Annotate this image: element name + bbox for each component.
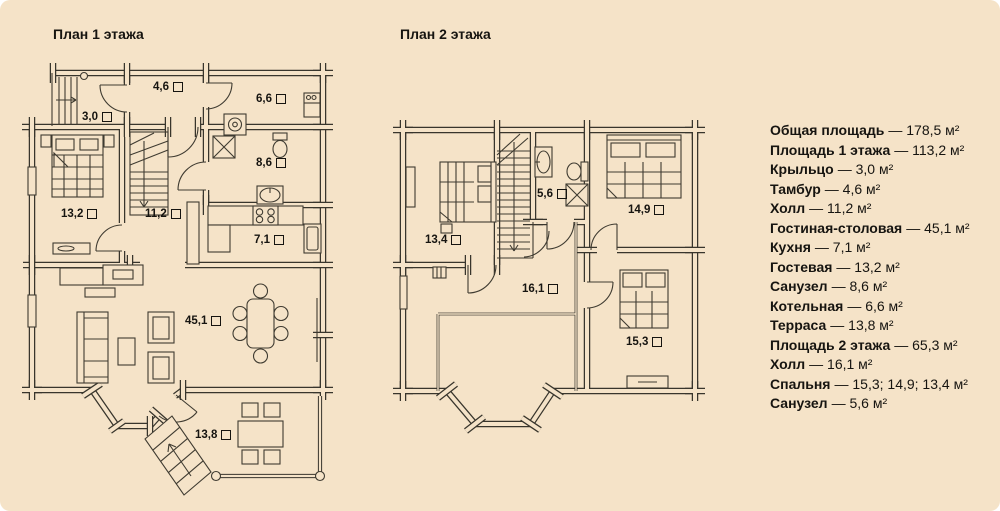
sqm-icon xyxy=(548,284,558,294)
sink-icon xyxy=(535,147,552,177)
room-area-label: 13,2 xyxy=(61,208,97,220)
room-area-label: 13,8 xyxy=(195,429,231,441)
room-area-label: 5,6 xyxy=(537,188,567,200)
legend-item: Площадь 2 этажа— 65,3 м² xyxy=(770,336,995,356)
plan2-drawing: 5,6 14,9 13,4 16,1 15,3 xyxy=(390,110,710,450)
room-area-label: 7,1 xyxy=(254,234,284,246)
plan1-svg xyxy=(20,55,360,505)
toilet-icon xyxy=(273,133,287,158)
dresser-icon xyxy=(53,243,90,254)
toilet-icon xyxy=(567,162,588,181)
boiler-icon xyxy=(304,93,320,117)
dining-table-icon xyxy=(233,284,288,363)
sqm-icon xyxy=(652,337,662,347)
sqm-icon xyxy=(654,205,664,215)
sqm-icon xyxy=(451,235,461,245)
bed-icon xyxy=(607,135,681,198)
staircase-icon xyxy=(497,134,533,258)
room-area-label: 13,4 xyxy=(425,234,461,246)
legend-item: Кухня— 7,1 м² xyxy=(770,238,995,258)
room-area-label: 16,1 xyxy=(522,283,558,295)
bed-icon xyxy=(440,162,496,233)
sofa-icon xyxy=(77,312,108,383)
room-area-label: 14,9 xyxy=(628,204,664,216)
legend-item: Котельная— 6,6 м² xyxy=(770,297,995,317)
legend-item: Крыльцо— 3,0 м² xyxy=(770,160,995,180)
staircase-icon xyxy=(130,132,168,215)
washing-machine-icon xyxy=(224,114,246,135)
legend-item: Терраса— 13,8 м² xyxy=(770,316,995,336)
room-area-label: 3,0 xyxy=(82,111,112,123)
room-area-label: 6,6 xyxy=(256,93,286,105)
legend-item: Общая площадь— 178,5 м² xyxy=(770,121,995,141)
sqm-icon xyxy=(173,82,183,92)
terrace-stairs-icon xyxy=(145,416,211,495)
door-swing-icon xyxy=(468,222,617,308)
radiator-icon xyxy=(433,267,446,278)
legend-item: Санузел— 8,6 м² xyxy=(770,277,995,297)
room-area-label: 45,1 xyxy=(185,315,221,327)
legend-item: Гостевая— 13,2 м² xyxy=(770,258,995,278)
stove-icon xyxy=(253,206,278,225)
plan1-title: План 1 этажа xyxy=(53,26,144,42)
legend: Общая площадь— 178,5 м² Площадь 1 этажа—… xyxy=(770,121,995,414)
legend-item: Холл— 11,2 м² xyxy=(770,199,995,219)
plan2-svg xyxy=(390,110,710,450)
armchair-icon xyxy=(148,312,174,383)
sqm-icon xyxy=(211,316,221,326)
sqm-icon xyxy=(276,158,286,168)
plan2-title: План 2 этажа xyxy=(400,26,491,42)
sqm-icon xyxy=(557,189,567,199)
coffee-table-icon xyxy=(118,338,135,365)
floorplan-card: План 1 этажа План 2 этажа xyxy=(0,0,1000,511)
sqm-icon xyxy=(102,112,112,122)
legend-item: Спальня— 15,3; 14,9; 13,4 м² xyxy=(770,375,995,395)
legend-item: Холл— 16,1 м² xyxy=(770,355,995,375)
dresser-icon xyxy=(627,376,668,388)
sqm-icon xyxy=(221,430,231,440)
sqm-icon xyxy=(87,209,97,219)
bed-icon xyxy=(41,135,114,197)
chimney-duct xyxy=(187,202,199,264)
legend-item: Санузел— 5,6 м² xyxy=(770,394,995,414)
legend-item: Тамбур— 4,6 м² xyxy=(770,180,995,200)
sink-icon xyxy=(257,186,283,204)
room-area-label: 8,6 xyxy=(256,157,286,169)
fridge-icon xyxy=(304,224,321,253)
room-area-label: 11,2 xyxy=(145,208,181,220)
shower-icon xyxy=(566,184,588,206)
room-area-label: 15,3 xyxy=(626,336,662,348)
legend-item: Площадь 1 этажа— 113,2 м² xyxy=(770,141,995,161)
room-area-label: 4,6 xyxy=(153,81,183,93)
sqm-icon xyxy=(274,235,284,245)
sqm-icon xyxy=(171,209,181,219)
plan1-drawing: 3,0 4,6 6,6 8,6 13,2 11,2 7,1 45,1 13,8 xyxy=(20,55,360,505)
desk-icon xyxy=(60,265,143,297)
bed-icon xyxy=(620,270,668,328)
terrace-table-icon xyxy=(238,403,283,464)
legend-item: Гостиная-столовая— 45,1 м² xyxy=(770,219,995,239)
sqm-icon xyxy=(276,94,286,104)
shower-icon xyxy=(213,136,235,158)
